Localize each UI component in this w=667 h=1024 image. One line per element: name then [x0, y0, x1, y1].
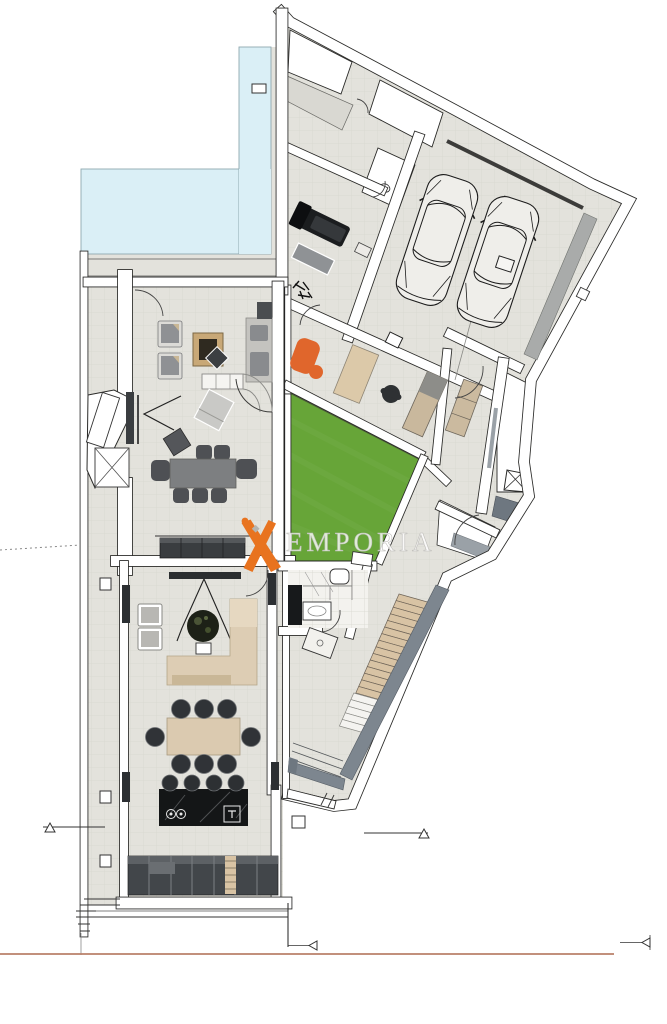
svg-text:EMPORIA: EMPORIA	[286, 527, 436, 557]
